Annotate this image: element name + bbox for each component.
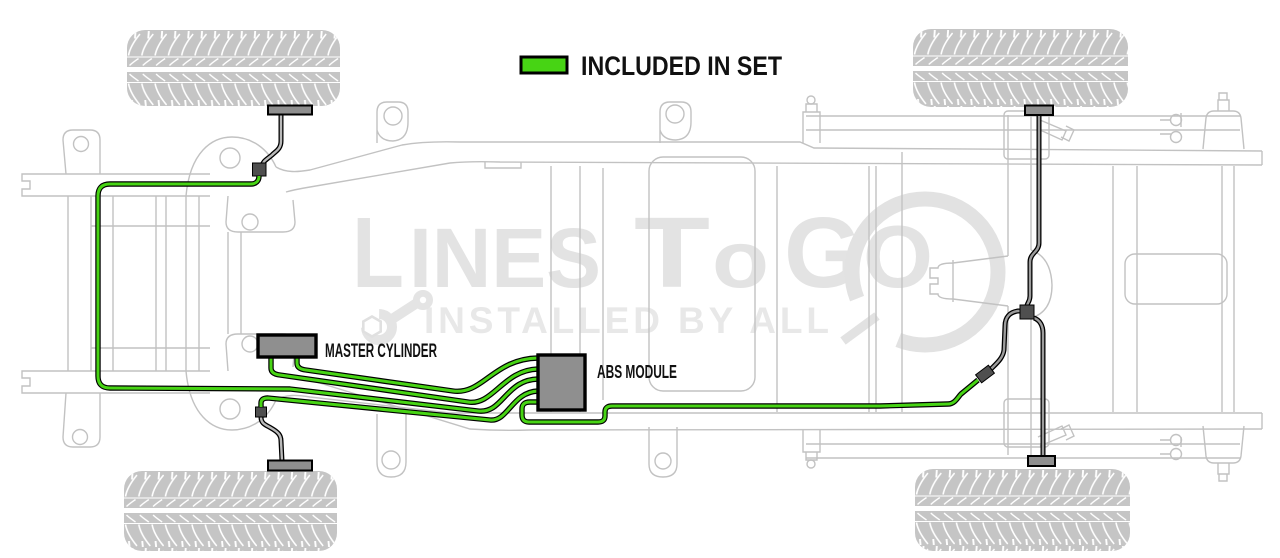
svg-text:L: L bbox=[352, 197, 404, 309]
svg-text:INES: INES bbox=[409, 211, 601, 305]
svg-text:ABS MODULE: ABS MODULE bbox=[597, 362, 677, 382]
svg-text:INSTALLED BY ALL: INSTALLED BY ALL bbox=[424, 300, 829, 341]
svg-text:INCLUDED IN SET: INCLUDED IN SET bbox=[581, 51, 782, 81]
svg-text:MASTER CYLINDER: MASTER CYLINDER bbox=[325, 341, 437, 362]
svg-text:o: o bbox=[712, 215, 769, 305]
svg-text:T: T bbox=[634, 197, 710, 309]
